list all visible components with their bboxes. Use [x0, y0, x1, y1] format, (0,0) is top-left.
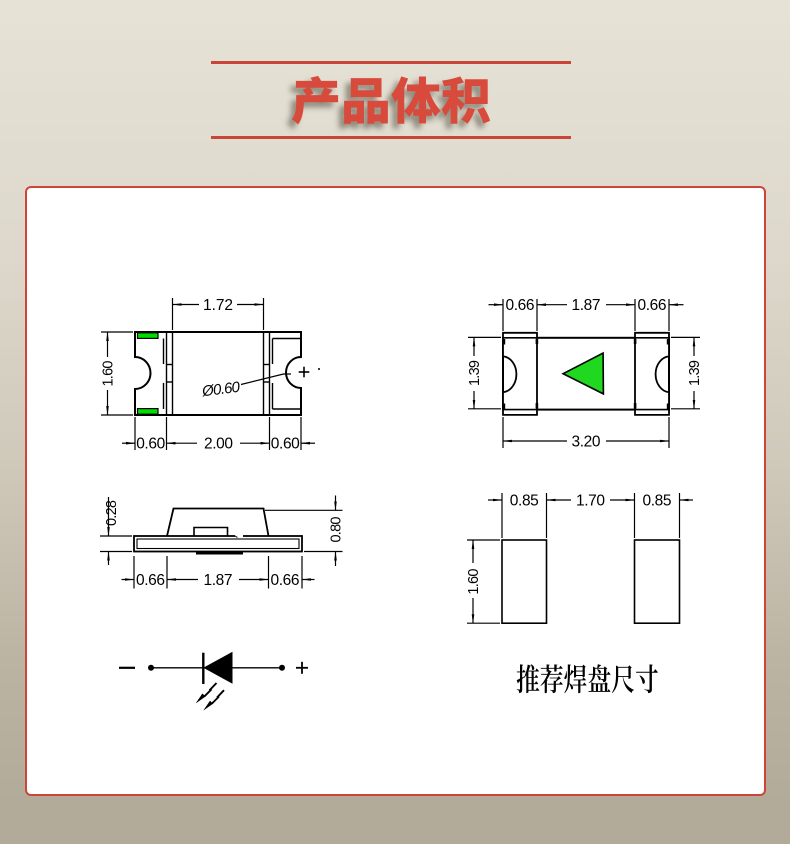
svg-text:0.60: 0.60	[271, 436, 300, 453]
svg-text:0.80: 0.80	[329, 517, 345, 543]
svg-text:0.85: 0.85	[510, 493, 539, 510]
svg-text:1.60: 1.60	[101, 361, 117, 387]
svg-text:1.72: 1.72	[203, 297, 233, 314]
svg-text:0.85: 0.85	[643, 493, 672, 510]
svg-text:0.66: 0.66	[506, 297, 535, 314]
svg-text:1.87: 1.87	[572, 297, 601, 314]
svg-text:Ø0.60: Ø0.60	[200, 379, 241, 401]
svg-text:1.39: 1.39	[687, 360, 703, 386]
svg-text:3.20: 3.20	[572, 434, 601, 451]
svg-text:1.87: 1.87	[204, 572, 233, 589]
svg-text:0.60: 0.60	[136, 436, 165, 453]
svg-text:0.28: 0.28	[104, 500, 120, 526]
svg-text:1.60: 1.60	[466, 569, 482, 595]
svg-text:0.66: 0.66	[638, 297, 667, 314]
svg-text:0.66: 0.66	[136, 572, 165, 589]
svg-text:0.66: 0.66	[271, 572, 300, 589]
svg-text:1.39: 1.39	[467, 360, 483, 386]
svg-text:1.70: 1.70	[576, 493, 605, 510]
svg-text:2.00: 2.00	[204, 436, 233, 453]
